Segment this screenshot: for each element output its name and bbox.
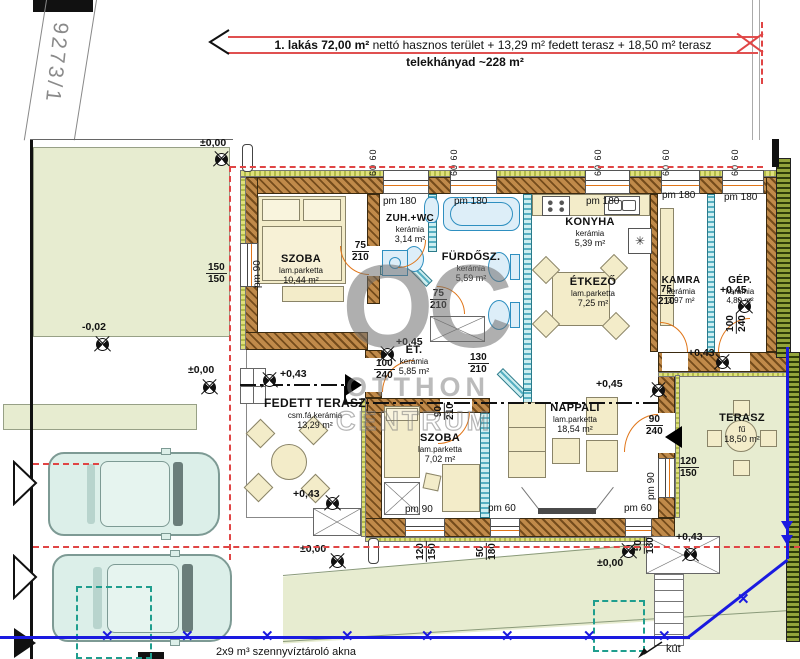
elevation-label: +0,43 — [688, 347, 715, 359]
parapet-dim: pm 90 — [252, 248, 263, 288]
elevation-label: ±0,00 — [300, 543, 326, 555]
elevation-symbol-icon — [328, 552, 346, 570]
room-area: 5,39 m² — [555, 238, 625, 248]
door-opening-kamra — [662, 353, 688, 371]
dim-top: 150 — [206, 262, 227, 274]
sink-bowl — [622, 200, 636, 211]
car-roof — [100, 461, 169, 527]
utility-x-mark: ✕ — [583, 629, 596, 644]
parapet-dim: pm 180 — [454, 196, 487, 207]
elevation-label: +0,45 — [596, 378, 623, 390]
sewage-tank-outline — [76, 586, 152, 659]
header-extension-line — [761, 22, 763, 84]
downspout — [368, 538, 379, 564]
wall-dim-60: 60 60 — [730, 144, 740, 176]
window-dim-150-150: 150150 — [206, 262, 227, 285]
parapet-dim: pm 90 — [405, 504, 433, 515]
parcel-boundary-line — [752, 0, 753, 140]
desk — [442, 464, 480, 512]
elevation-label: ±0,00 — [188, 364, 214, 376]
window-dim-120-150: 120150 — [678, 456, 699, 479]
wall-dim-60: 60 60 — [368, 144, 378, 176]
door-dim-100-240: 100240 — [725, 313, 748, 334]
room-label-terasz: TERASZ fű 18,50 m² — [702, 412, 782, 444]
room-material: kerámia — [555, 229, 625, 238]
flow-arrow-icon — [781, 521, 793, 531]
bidet-tank — [510, 302, 520, 328]
room-material: lam.parketta — [520, 415, 630, 424]
elevation-label: +0,43 — [676, 531, 703, 543]
parapet-dim: pm 180 — [662, 190, 695, 201]
header-area-regular: nettó hasznos terület + 13,29 m² fedett … — [373, 38, 712, 52]
entry-steps — [313, 508, 361, 536]
terrace-table — [271, 444, 307, 480]
partition-furdo-konyha — [523, 194, 532, 394]
utility-x-mark: ✕ — [261, 629, 274, 644]
header-area-text: 1. lakás 72,00 m² nettó hasznos terület … — [232, 37, 754, 52]
header-dim-line-bottom — [228, 52, 758, 54]
parcel-number: 9273/1 — [40, 21, 72, 105]
pillow — [303, 199, 341, 221]
car-windshield — [173, 462, 183, 526]
elevation-symbol-icon — [93, 335, 111, 353]
utility-x-mark: ✕ — [737, 592, 750, 607]
armchair — [586, 440, 618, 472]
room-material: lam.parketta — [398, 445, 482, 454]
room-name: TERASZ — [702, 412, 782, 425]
header-area-bold: 1. lakás 72,00 m² — [275, 38, 370, 52]
car-mirror — [170, 639, 180, 646]
partition-kamra-gep — [707, 194, 715, 352]
utility-x-mark: ✕ — [501, 629, 514, 644]
room-name: ZUH.+WC — [378, 213, 442, 225]
floor-plan-canvas: 9273/1 1. lakás 72,00 m² nettó hasznos t… — [0, 0, 800, 659]
elevation-label: +0,43 — [293, 488, 320, 500]
room-name: ÉTKEZŐ — [553, 276, 633, 289]
parcel-boundary-line — [74, 0, 97, 140]
flow-arrow-icon — [781, 535, 793, 545]
well-label: kút — [666, 643, 681, 655]
room-name: KONYHA — [555, 216, 625, 229]
door-dim-90-240: 90240 — [646, 414, 663, 437]
boundary-triangle-icon — [12, 460, 38, 506]
window-north — [722, 170, 764, 194]
parking-mark — [33, 463, 99, 465]
watermark-logo: OC — [342, 248, 507, 366]
dim-top: 100 — [725, 313, 737, 334]
sewage-note: 2x9 m³ szennyvíztároló akna — [216, 646, 356, 658]
parapet-dim: pm 180 — [724, 192, 757, 203]
room-name: SZOBA — [251, 253, 351, 266]
boundary-triangle-icon — [12, 626, 38, 659]
dim-bottom: 150 — [427, 541, 438, 562]
pantry-shelf — [660, 208, 674, 326]
window-north — [585, 170, 630, 194]
dresser — [282, 286, 344, 302]
room-material: lam.parketta — [553, 289, 633, 298]
door-arc-kamra — [660, 322, 688, 352]
elevation-label: ±0,00 — [597, 557, 623, 569]
elevation-label: +0,45 — [720, 284, 747, 296]
dim-top: 120 — [415, 541, 427, 562]
parapet-dim: pm 180 — [586, 196, 619, 207]
well-arrow-icon — [636, 640, 664, 659]
utility-x-mark: ✕ — [421, 629, 434, 644]
dim-top: 120 — [678, 456, 699, 468]
tv — [538, 508, 596, 514]
hedge-east — [776, 158, 791, 358]
parapet-dim: pm 60 — [488, 503, 516, 514]
window-north — [383, 170, 429, 194]
room-material: fű — [702, 425, 782, 434]
room-material: lam.parketta — [251, 266, 351, 275]
door-dim-75-210: 75210 — [658, 284, 675, 307]
room-label-konyha: KONYHA kerámia 5,39 m² — [555, 216, 625, 248]
section-marker-icon — [665, 426, 682, 448]
utility-x-mark: ✕ — [101, 629, 114, 644]
car-mirror — [161, 448, 171, 455]
stove — [542, 196, 570, 216]
car-windshield — [182, 564, 193, 631]
room-name: NAPPALI — [520, 402, 630, 415]
car-mirror — [170, 550, 180, 557]
car-mirror — [161, 533, 171, 540]
header-arrow-icon — [206, 28, 232, 56]
utility-x-mark: ✕ — [181, 629, 194, 644]
window-south — [625, 518, 652, 537]
dim-bottom: 150 — [678, 468, 699, 479]
room-label-zuhwc: ZUH.+WC kerámia 3,14 m² — [378, 213, 442, 244]
chair — [733, 460, 750, 476]
setback-line — [33, 546, 800, 548]
boundary-post — [772, 139, 779, 167]
lawn-area — [33, 147, 230, 337]
elevation-label: -0,02 — [82, 321, 106, 333]
room-area: 7,02 m² — [398, 454, 482, 464]
room-label-etkezo: ÉTKEZŐ lam.parketta 7,25 m² — [553, 276, 633, 308]
room-area: 7,25 m² — [553, 298, 633, 308]
desk-chair — [423, 473, 442, 492]
room-material: kerámia — [378, 225, 442, 234]
header-plot-share: telekhányad ~228 m² — [330, 55, 600, 69]
window-south — [490, 518, 520, 537]
dim-top: 75 — [658, 284, 675, 296]
room-label-nappali: NAPPALI lam.parketta 18,54 m² — [520, 402, 630, 434]
room-area: 18,54 m² — [520, 424, 630, 434]
wall-dim-60: 60 60 — [449, 144, 459, 176]
chair — [244, 473, 274, 503]
window-south — [405, 518, 445, 537]
pillow — [262, 199, 300, 221]
wall-dim-60: 60 60 — [661, 144, 671, 176]
coffee-table — [552, 438, 580, 464]
window-nappali-east — [658, 458, 675, 498]
parapet-dim: pm 60 — [624, 503, 652, 514]
utility-x-mark: ✕ — [341, 629, 354, 644]
parcel-boundary-line — [759, 0, 760, 140]
parapet-dim: pm 180 — [383, 196, 416, 207]
section-line — [240, 384, 346, 386]
elevation-label: +0,43 — [280, 368, 307, 380]
dim-top: 90 — [646, 414, 663, 426]
dim-bottom: 150 — [206, 274, 227, 285]
wall-north — [240, 177, 788, 194]
neighbor-building-edge — [33, 0, 93, 12]
room-area: 18,50 m² — [702, 434, 782, 444]
setback-line — [230, 166, 763, 168]
insulation-south — [365, 537, 675, 542]
car-rear-window — [87, 464, 95, 523]
room-label-szoba1: SZOBA lam.parketta 10,44 m² — [251, 253, 351, 285]
room-area: 10,44 m² — [251, 275, 351, 285]
dim-bottom: 210 — [658, 296, 675, 307]
elevation-symbol-icon — [200, 378, 218, 396]
insulation-top — [240, 170, 788, 177]
dim-bottom: 240 — [737, 313, 748, 334]
watermark-line1: OTTHON — [346, 372, 490, 403]
wall-konyha-kamra — [650, 194, 658, 352]
wall-dim-60: 60 60 — [593, 144, 603, 176]
parapet-dim: pm 90 — [646, 460, 657, 500]
boundary-triangle-icon — [12, 554, 38, 600]
watermark-line2: CENTRUM — [336, 406, 492, 437]
dim-bottom: 240 — [646, 426, 663, 437]
window-dim-120-150: 120150 — [415, 541, 438, 562]
setback-line — [229, 166, 231, 560]
fridge-snowflake-icon: ✳ — [628, 228, 652, 254]
elevation-label: ±0,00 — [200, 137, 226, 149]
